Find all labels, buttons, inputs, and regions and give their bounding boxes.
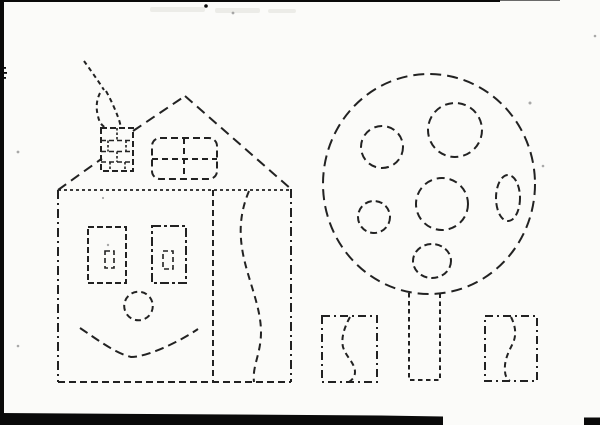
bleedthrough-smudge <box>150 7 205 12</box>
scan-top-line-faint <box>500 0 560 1</box>
ink-speck <box>204 4 208 8</box>
dust-speck <box>594 35 597 38</box>
dust-speck <box>17 151 20 154</box>
scanned-worksheet-page <box>0 0 600 425</box>
dust-speck <box>17 345 20 348</box>
dust-speck <box>232 12 235 15</box>
worksheet-drawing <box>0 0 600 425</box>
scan-edge-tick <box>0 72 7 74</box>
scan-left-strip <box>0 0 4 425</box>
bleedthrough-smudge <box>268 9 296 13</box>
scan-edge-tick <box>0 77 6 79</box>
bleedthrough-smudge <box>215 8 260 13</box>
dust-speck <box>542 165 545 168</box>
scan-bottom-bar-right <box>584 418 600 425</box>
dust-speck <box>107 244 109 246</box>
dust-speck <box>102 197 104 199</box>
scan-edge-tick <box>0 67 6 69</box>
paper-background <box>0 0 600 425</box>
scan-top-line <box>0 0 500 2</box>
dust-speck <box>529 102 532 105</box>
